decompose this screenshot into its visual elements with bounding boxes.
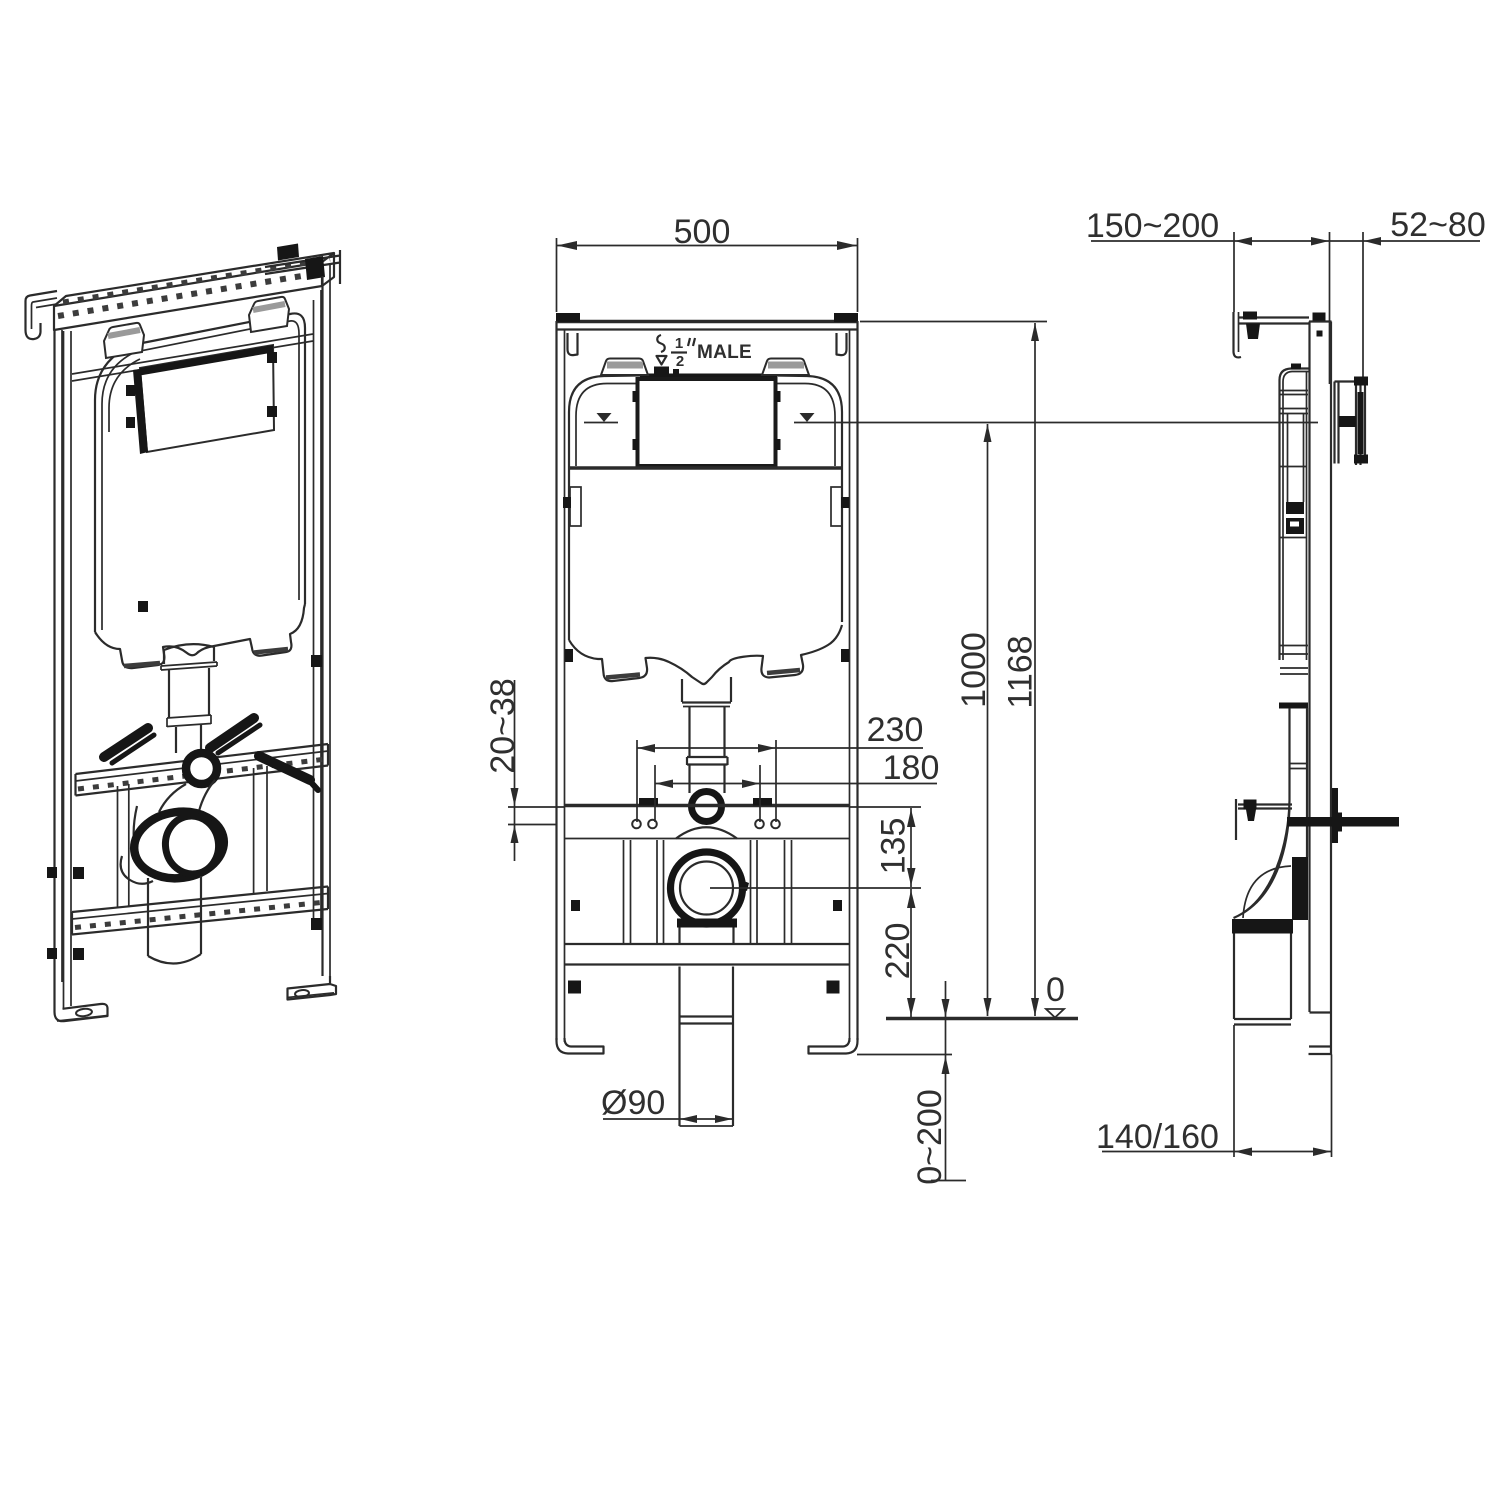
svg-text:220: 220 <box>879 923 917 980</box>
svg-text:1168: 1168 <box>1002 635 1040 708</box>
svg-text:0: 0 <box>1046 971 1065 1009</box>
svg-text:500: 500 <box>674 213 731 251</box>
svg-text:52~80: 52~80 <box>1390 206 1486 244</box>
svg-text:MALE: MALE <box>697 342 752 363</box>
svg-text:135: 135 <box>875 818 913 875</box>
svg-text:140/160: 140/160 <box>1096 1118 1219 1156</box>
svg-text:180: 180 <box>883 749 940 787</box>
svg-text:1: 1 <box>675 335 683 352</box>
svg-text:230: 230 <box>867 711 924 749</box>
svg-text:20~38: 20~38 <box>484 678 522 774</box>
svg-text:2: 2 <box>676 353 684 370</box>
svg-text:Ø90: Ø90 <box>601 1084 665 1122</box>
svg-text:0~200: 0~200 <box>911 1089 949 1185</box>
svg-text:1000: 1000 <box>955 632 993 708</box>
svg-text:150~200: 150~200 <box>1086 207 1219 245</box>
